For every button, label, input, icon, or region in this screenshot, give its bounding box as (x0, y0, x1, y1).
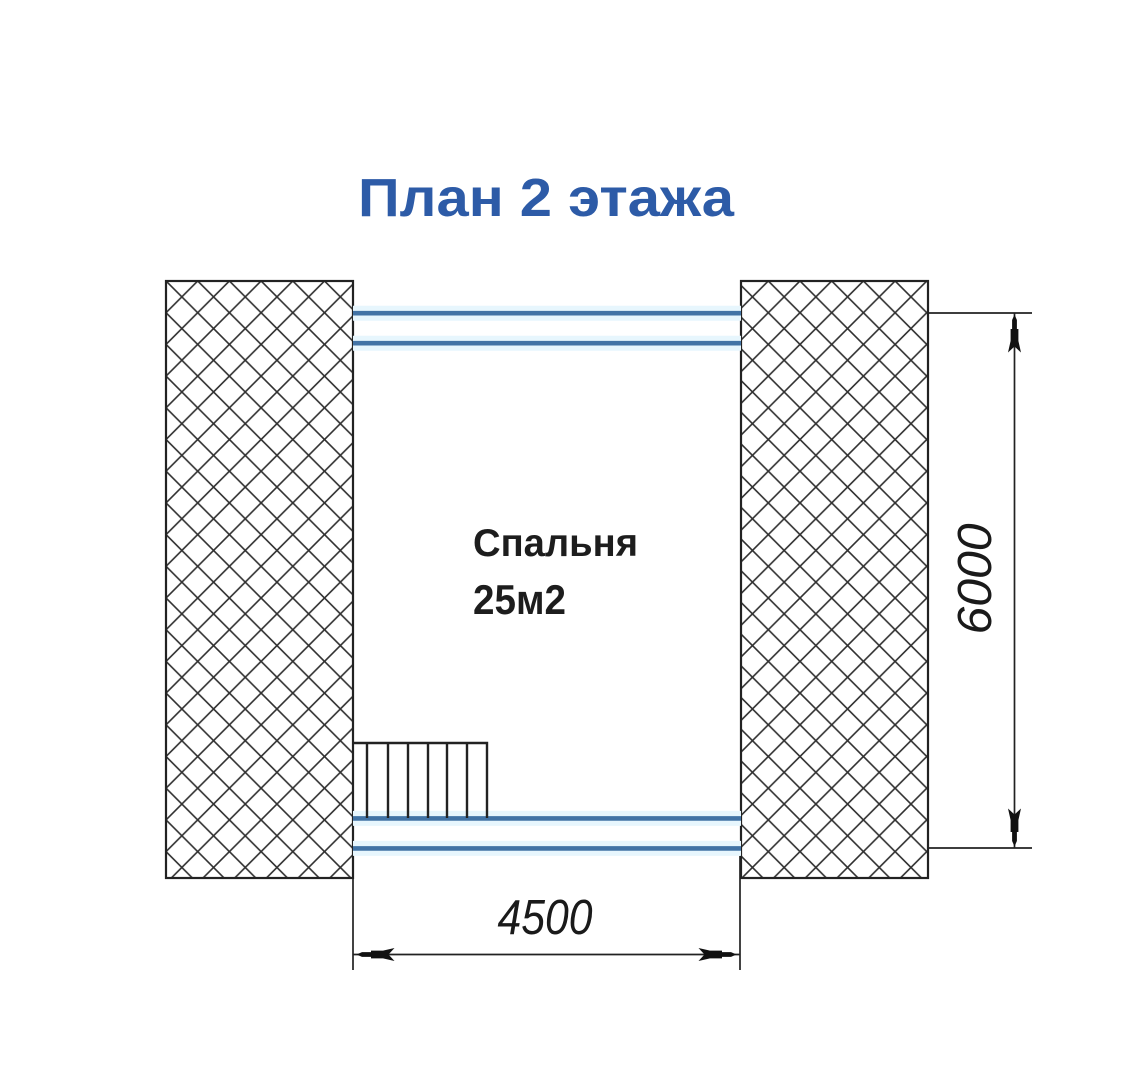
svg-text:4500: 4500 (498, 891, 593, 945)
svg-text:6000: 6000 (949, 523, 1002, 634)
svg-text:Спальня: Спальня (473, 522, 638, 565)
svg-text:План 2 этажа: План 2 этажа (358, 168, 735, 228)
svg-text:25м2: 25м2 (473, 576, 566, 623)
